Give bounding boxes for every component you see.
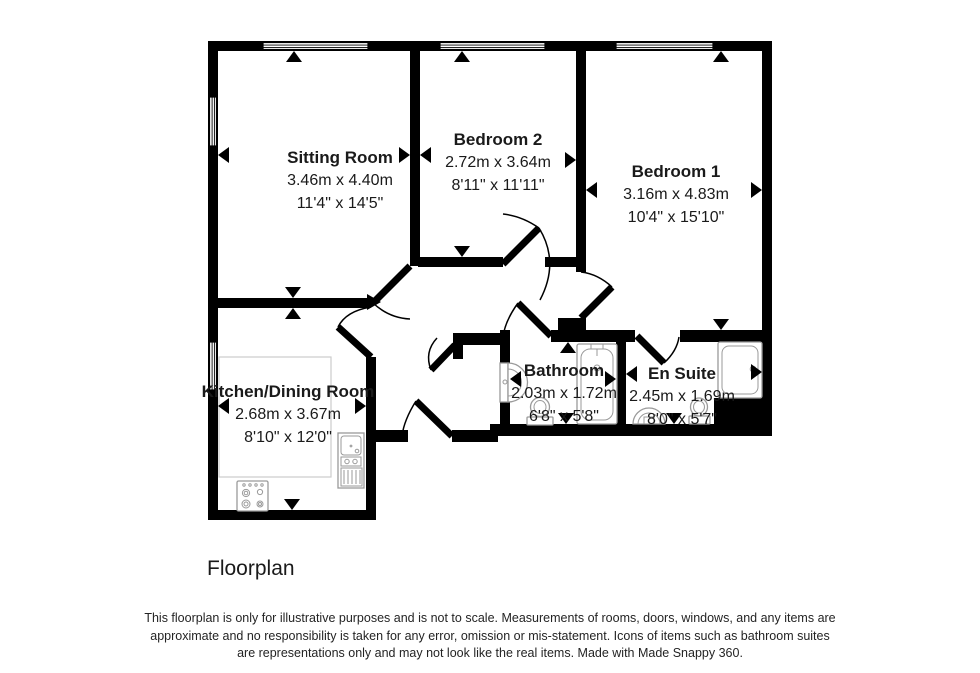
disclaimer-line: are representations only and may not loo… [0, 645, 980, 663]
disclaimer-text: This floorplan is only for illustrative … [0, 610, 980, 663]
page-title: Floorplan [207, 557, 295, 581]
window-icon [440, 43, 545, 50]
door-bedroom-2 [503, 214, 550, 300]
room-size-imperial: 8'10" x 12'0" [168, 426, 408, 449]
room-size-metric: 2.45m x 1.69m [562, 385, 802, 408]
room-name: En Suite [562, 362, 802, 385]
room-size-imperial: 8'0" x 5'7" [562, 408, 802, 431]
disclaimer-line: approximate and no responsibility is tak… [0, 628, 980, 646]
window-icon [616, 43, 713, 50]
window-icon [263, 43, 368, 50]
floorplan-canvas [0, 0, 980, 673]
floorplan-page: Sitting Room 3.46m x 4.40m 11'4" x 14'5"… [0, 0, 980, 673]
room-size-metric: 3.16m x 4.83m [556, 183, 796, 206]
room-name: Kitchen/Dining Room [168, 380, 408, 403]
door-bathroom [503, 303, 551, 337]
room-name: Bedroom 2 [378, 128, 618, 151]
window-icon [210, 97, 217, 146]
room-size-imperial: 10'4" x 15'10" [556, 206, 796, 229]
disclaimer-line: This floorplan is only for illustrative … [0, 610, 980, 628]
door-bedroom-1 [581, 272, 612, 318]
hob-icon [237, 481, 268, 511]
room-label-bedroom-1: Bedroom 1 3.16m x 4.83m 10'4" x 15'10" [556, 160, 796, 229]
room-name: Bedroom 1 [556, 160, 796, 183]
room-size-metric: 2.68m x 3.67m [168, 403, 408, 426]
room-label-en-suite: En Suite 2.45m x 1.69m 8'0" x 5'7" [562, 362, 802, 431]
door-sitting-room [373, 266, 410, 319]
door-kitchen [338, 307, 371, 357]
room-label-kitchen-dining-room: Kitchen/Dining Room 2.68m x 3.67m 8'10" … [168, 380, 408, 449]
